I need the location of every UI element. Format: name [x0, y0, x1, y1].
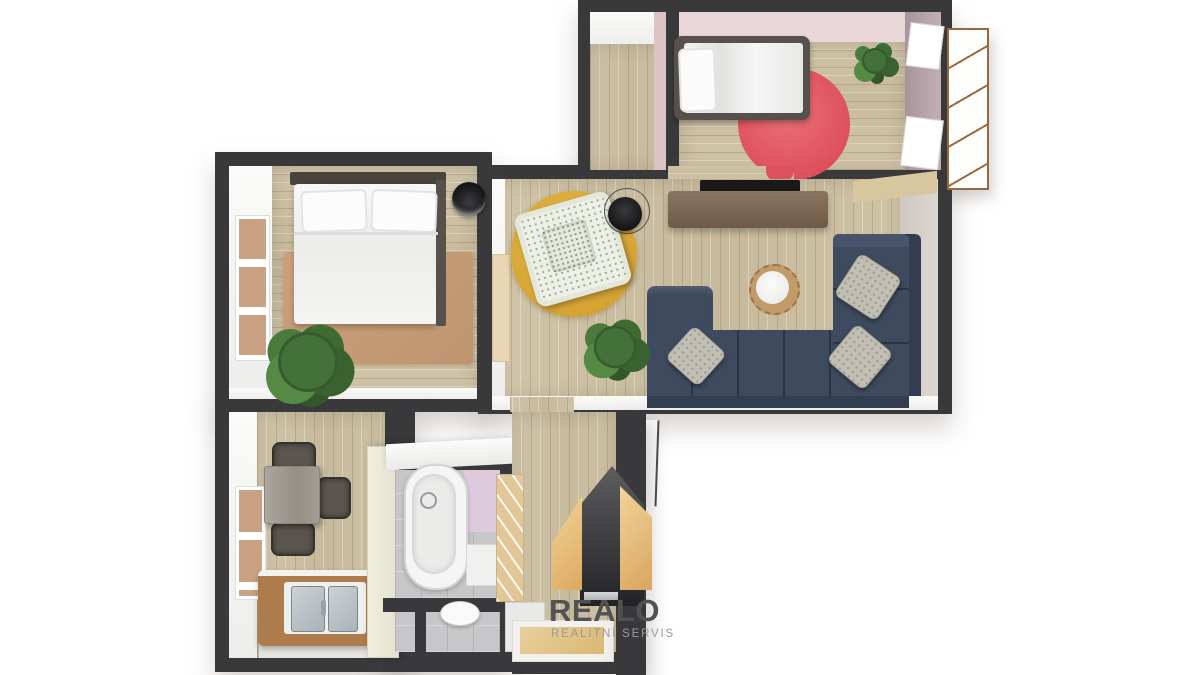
hall-louvered-wardrobe [496, 474, 524, 602]
sink-faucet [321, 600, 326, 616]
living-room-plant [594, 326, 637, 369]
kids-bedroom-plant [862, 48, 888, 74]
wc-mini-wall [415, 612, 426, 652]
kids-window-panel-upper [905, 22, 944, 70]
bathtub-basin [412, 474, 456, 574]
bedroom-floor-lamp [452, 182, 486, 216]
double-bed-frame-right [436, 180, 446, 326]
hallway-threshold [510, 397, 574, 412]
brand-tagline: REALITNÍ SERVIS [551, 628, 675, 640]
shower-hose [420, 492, 437, 509]
single-bed-pillow [678, 47, 717, 112]
round-side-table-top [756, 271, 789, 304]
floor-lamp-shade [608, 197, 642, 231]
floor-plan-render: REALO REALITNÍ SERVIS [0, 0, 1200, 675]
dining-table [264, 466, 320, 524]
sink-right [328, 586, 358, 632]
bed-pillow-right [370, 189, 437, 233]
bedroom-window [236, 216, 269, 360]
tv-console [668, 191, 828, 228]
bed-duvet-fold [294, 232, 438, 235]
bedroom-bottom-wall-face [229, 388, 477, 399]
dining-chair-bottom [271, 522, 315, 556]
lavender-wall-panel [464, 470, 500, 532]
bedroom-plant [278, 332, 338, 392]
sink-left [291, 586, 325, 632]
open-shelf-unit [947, 28, 989, 190]
closet-pink-wall [654, 12, 666, 170]
brand-wordmark: REALO [549, 593, 660, 629]
kids-window-panel-lower [900, 116, 944, 170]
dining-chair-right [317, 477, 351, 519]
sofa-armrest [833, 234, 909, 247]
bed-pillow-left [300, 189, 367, 233]
cream-door [492, 254, 510, 362]
toilet [440, 601, 480, 626]
